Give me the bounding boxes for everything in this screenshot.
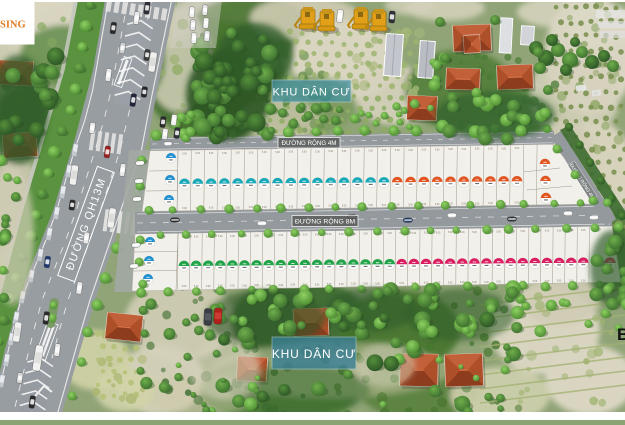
svg-text:5.00: 5.00 — [182, 153, 187, 155]
svg-text:KHU DÂN CƯ: KHU DÂN CƯ — [272, 346, 356, 361]
svg-text:5.00: 5.00 — [422, 150, 427, 152]
svg-text:5.00: 5.00 — [351, 284, 356, 286]
svg-text:5.00: 5.00 — [302, 152, 307, 154]
svg-text:5.00: 5.00 — [230, 286, 235, 288]
svg-text:5.00: 5.00 — [475, 149, 480, 151]
svg-text:5.00: 5.00 — [289, 206, 294, 208]
svg-text:5.00: 5.00 — [315, 151, 320, 153]
svg-text:5.00: 5.00 — [249, 207, 254, 209]
svg-text:5.00: 5.00 — [218, 236, 223, 238]
svg-text:ĐƯỜNG RỘNG 8M: ĐƯỜNG RỘNG 8M — [295, 217, 356, 226]
svg-text:5.00: 5.00 — [355, 151, 360, 153]
svg-text:5.00: 5.00 — [488, 203, 493, 205]
svg-text:5.00: 5.00 — [521, 231, 526, 233]
svg-text:5.00: 5.00 — [342, 206, 347, 208]
svg-text:5.00: 5.00 — [435, 149, 440, 151]
svg-text:5.00: 5.00 — [412, 233, 417, 235]
svg-text:5.00: 5.00 — [408, 150, 413, 152]
svg-text:5.00: 5.00 — [484, 282, 489, 284]
svg-text:5.00: 5.00 — [475, 203, 480, 205]
svg-text:5.00: 5.00 — [209, 153, 214, 155]
svg-text:5.00: 5.00 — [363, 234, 368, 236]
svg-text:5.00: 5.00 — [368, 150, 373, 152]
svg-text:5.00: 5.00 — [206, 286, 211, 288]
svg-text:5.00: 5.00 — [289, 152, 294, 154]
svg-text:5.00: 5.00 — [472, 282, 477, 284]
svg-text:5.00: 5.00 — [557, 281, 562, 283]
svg-text:5.00: 5.00 — [249, 152, 254, 154]
svg-text:5.00: 5.00 — [315, 206, 320, 208]
svg-text:5.00: 5.00 — [501, 148, 506, 150]
svg-text:5.00: 5.00 — [515, 148, 520, 150]
svg-text:5.00: 5.00 — [329, 151, 334, 153]
svg-text:5.00: 5.00 — [279, 285, 284, 287]
svg-text:5.00: 5.00 — [496, 282, 501, 284]
svg-text:5.00: 5.00 — [545, 231, 550, 233]
svg-text:5.00: 5.00 — [254, 285, 259, 287]
svg-text:5.00: 5.00 — [339, 284, 344, 286]
svg-text:5.00: 5.00 — [209, 208, 214, 210]
svg-text:5.00: 5.00 — [327, 234, 332, 236]
svg-text:5.00: 5.00 — [235, 207, 240, 209]
svg-text:5.00: 5.00 — [303, 235, 308, 237]
svg-text:5.00: 5.00 — [460, 232, 465, 234]
svg-text:5.00: 5.00 — [291, 285, 296, 287]
svg-text:5.00: 5.00 — [262, 207, 267, 209]
svg-text:5.00: 5.00 — [194, 237, 199, 239]
svg-text:5.00: 5.00 — [242, 285, 247, 287]
svg-text:5.00: 5.00 — [368, 205, 373, 207]
svg-text:5.00: 5.00 — [363, 284, 368, 286]
svg-text:5.00: 5.00 — [557, 230, 562, 232]
svg-text:5.00: 5.00 — [533, 281, 538, 283]
svg-text:5.00: 5.00 — [342, 151, 347, 153]
svg-text:5.00: 5.00 — [230, 236, 235, 238]
svg-text:5.00: 5.00 — [436, 232, 441, 234]
svg-text:ĐƯỜNG RỘNG 4M: ĐƯỜNG RỘNG 4M — [282, 140, 337, 147]
svg-text:5.00: 5.00 — [182, 208, 187, 210]
svg-text:5.00: 5.00 — [235, 153, 240, 155]
svg-text:5.00: 5.00 — [279, 235, 284, 237]
svg-text:5.00: 5.00 — [387, 233, 392, 235]
svg-text:5.00: 5.00 — [395, 150, 400, 152]
svg-text:5.00: 5.00 — [462, 149, 467, 151]
svg-text:5.00: 5.00 — [462, 204, 467, 206]
svg-text:5.00: 5.00 — [488, 149, 493, 151]
svg-text:5.00: 5.00 — [275, 152, 280, 154]
svg-text:5.00: 5.00 — [254, 236, 259, 238]
svg-text:5.00: 5.00 — [448, 282, 453, 284]
svg-text:5.00: 5.00 — [448, 149, 453, 151]
svg-text:5.00: 5.00 — [448, 232, 453, 234]
svg-text:5.00: 5.00 — [382, 150, 387, 152]
svg-text:5.00: 5.00 — [581, 280, 586, 282]
svg-text:5.00: 5.00 — [315, 284, 320, 286]
svg-text:KHU DÂN CƯ: KHU DÂN CƯ — [273, 86, 351, 99]
svg-text:5.00: 5.00 — [262, 152, 267, 154]
svg-text:5.00: 5.00 — [408, 204, 413, 206]
svg-text:5.00: 5.00 — [581, 230, 586, 232]
svg-text:5.00: 5.00 — [400, 283, 405, 285]
svg-text:5.00: 5.00 — [496, 231, 501, 233]
svg-text:5.00: 5.00 — [382, 205, 387, 207]
svg-text:5.00: 5.00 — [435, 204, 440, 206]
svg-text:5.00: 5.00 — [222, 153, 227, 155]
svg-text:5.00: 5.00 — [196, 153, 201, 155]
svg-text:5.00: 5.00 — [339, 234, 344, 236]
svg-text:5.00: 5.00 — [375, 283, 380, 285]
svg-text:B: B — [617, 325, 625, 344]
svg-text:5.00: 5.00 — [515, 203, 520, 205]
svg-text:5.00: 5.00 — [472, 232, 477, 234]
svg-text:SING: SING — [0, 20, 26, 31]
svg-text:5.00: 5.00 — [182, 286, 187, 288]
